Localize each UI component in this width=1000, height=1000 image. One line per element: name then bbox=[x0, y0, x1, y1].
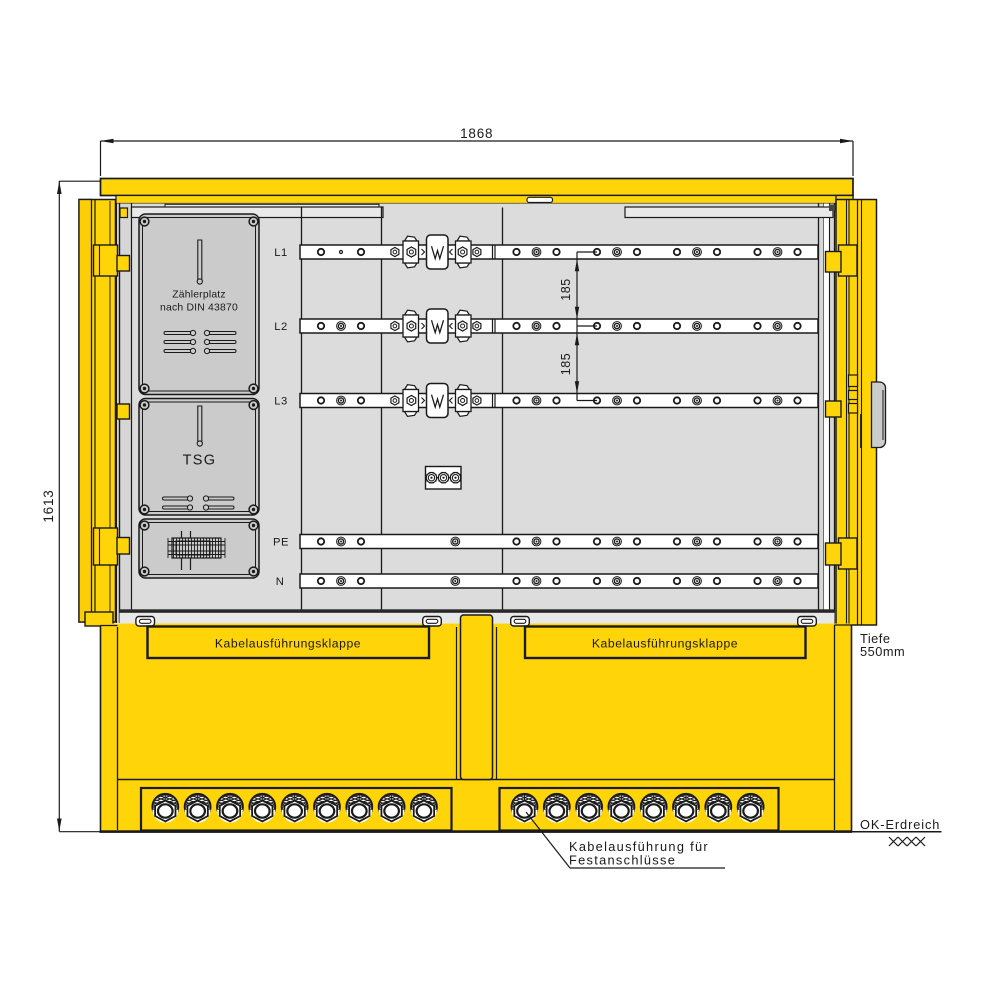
svg-text:Kabelausführungsklappe: Kabelausführungsklappe bbox=[592, 637, 738, 651]
svg-text:nach DIN 43870: nach DIN 43870 bbox=[160, 303, 238, 314]
svg-text:PE: PE bbox=[273, 537, 289, 549]
svg-text:L3: L3 bbox=[274, 396, 287, 408]
svg-text:Kabelausführungsklappe: Kabelausführungsklappe bbox=[215, 637, 361, 651]
svg-text:L1: L1 bbox=[274, 247, 287, 259]
svg-text:N: N bbox=[276, 576, 285, 588]
svg-text:1868: 1868 bbox=[460, 126, 493, 141]
svg-text:Zählerplatz: Zählerplatz bbox=[172, 290, 226, 301]
svg-text:1613: 1613 bbox=[41, 489, 56, 522]
svg-text:185: 185 bbox=[559, 278, 573, 300]
svg-text:185: 185 bbox=[559, 353, 573, 375]
svg-text:L2: L2 bbox=[274, 321, 287, 333]
svg-text:TSG: TSG bbox=[183, 453, 217, 469]
svg-text:550mm: 550mm bbox=[860, 644, 905, 659]
svg-text:Festanschlüsse: Festanschlüsse bbox=[569, 853, 676, 868]
svg-text:OK-Erdreich: OK-Erdreich bbox=[860, 817, 940, 832]
